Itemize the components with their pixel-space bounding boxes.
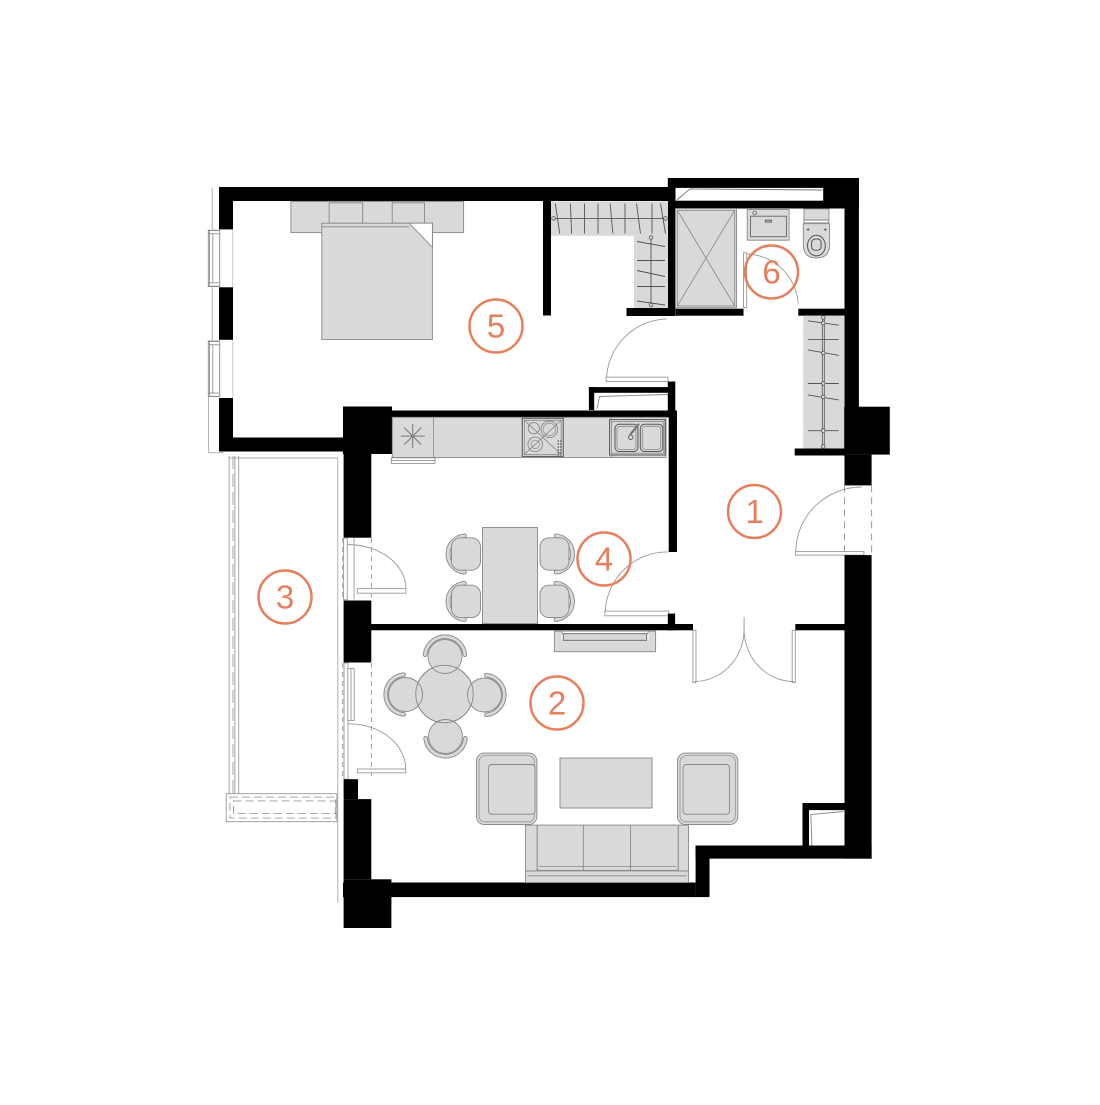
svg-text:4: 4 [595, 541, 613, 578]
svg-text:1: 1 [745, 493, 763, 530]
svg-text:6: 6 [762, 254, 780, 291]
svg-text:3: 3 [276, 579, 294, 616]
svg-text:2: 2 [548, 685, 566, 722]
svg-text:5: 5 [487, 308, 505, 345]
